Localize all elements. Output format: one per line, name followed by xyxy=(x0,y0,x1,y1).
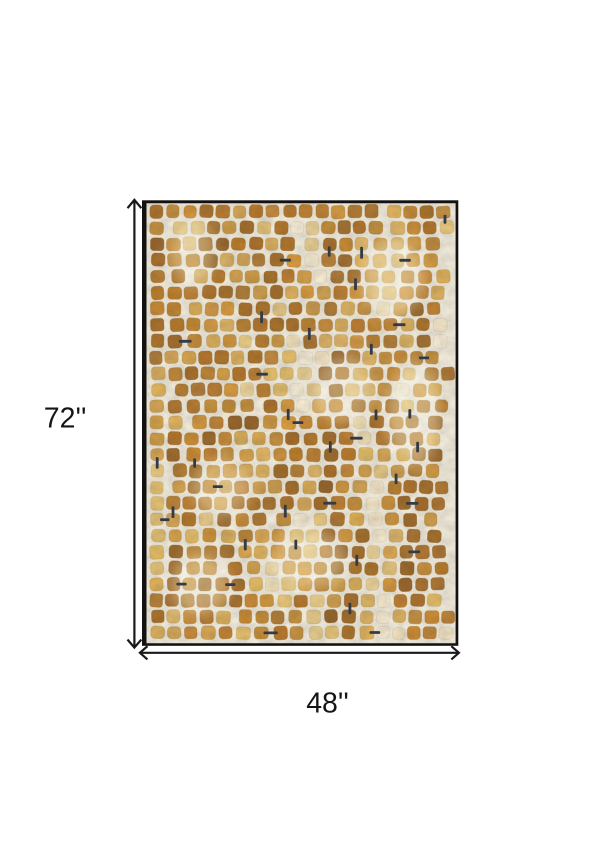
svg-text:48'': 48'' xyxy=(306,687,349,719)
svg-text:72'': 72'' xyxy=(44,402,87,434)
